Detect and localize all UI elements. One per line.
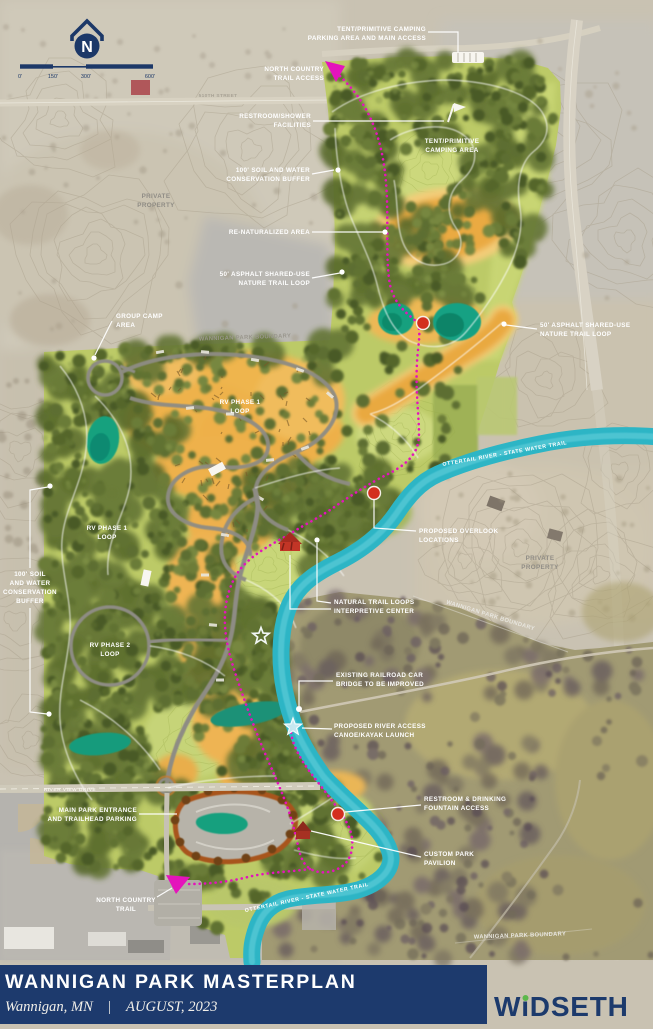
svg-text:0': 0' [18,74,22,80]
svg-text:RIVER VIEW DRIVE: RIVER VIEW DRIVE [44,787,97,793]
svg-text:150': 150' [48,74,58,80]
svg-text:RE-NATURALIZED AREA: RE-NATURALIZED AREA [229,229,310,236]
svg-text:600': 600' [145,74,155,80]
svg-text:WıDSETH: WıDSETH [494,991,629,1022]
svg-text:510TH STREET: 510TH STREET [199,93,238,99]
svg-text:Wannigan, MN | AUGUST, 2: Wannigan, MN | AUGUST, 2023 [5,999,217,1015]
svg-text:N: N [81,39,93,56]
svg-text:WANNIGAN PARK MASTERPLAN: WANNIGAN PARK MASTERPLAN [5,971,357,993]
svg-text:300': 300' [81,74,91,80]
